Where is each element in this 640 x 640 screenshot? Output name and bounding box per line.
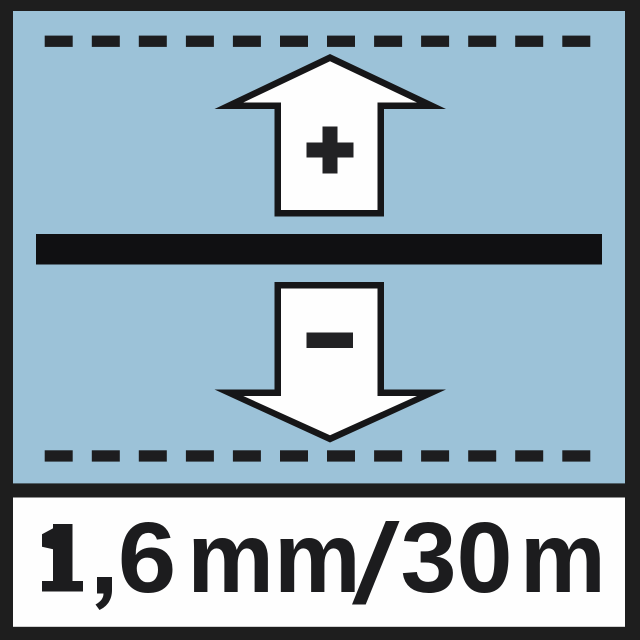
- svg-text:30: 30: [401, 502, 513, 614]
- svg-text:6: 6: [118, 501, 177, 613]
- svg-text:m: m: [520, 501, 606, 613]
- svg-text:mm: mm: [187, 502, 360, 613]
